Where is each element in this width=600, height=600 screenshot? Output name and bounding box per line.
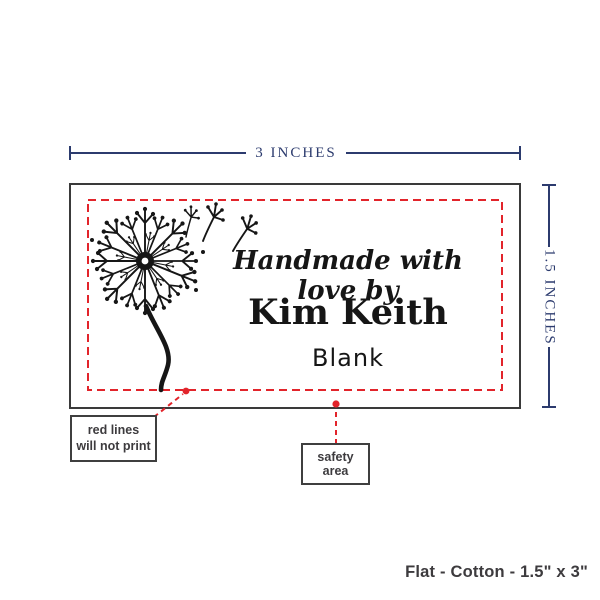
safety-area-pointer-dot xyxy=(332,400,339,407)
label-blank-text: Blank xyxy=(208,344,488,372)
width-dimension-label: 3 INCHES xyxy=(246,136,346,171)
height-dimension-bottom-cap xyxy=(542,406,556,408)
label-name-text: Kim Keith xyxy=(208,292,488,333)
red-lines-callout: red lines will not print xyxy=(70,415,157,462)
safety-area-callout: safety area xyxy=(301,443,370,485)
height-dimension-top-cap xyxy=(542,184,556,186)
red-lines-callout-line1: red lines xyxy=(74,422,153,438)
red-lines-pointer-dot xyxy=(183,388,190,395)
red-lines-callout-line2: will not print xyxy=(74,438,153,454)
height-dimension-label: 1.5 INCHES xyxy=(533,247,565,347)
label-proof-canvas: 3 INCHES 1.5 INCHES Handmade with love b… xyxy=(0,0,600,600)
product-spec-text: Flat - Cotton - 1.5" x 3" xyxy=(405,563,588,582)
red-lines-pointer-line xyxy=(154,394,183,417)
